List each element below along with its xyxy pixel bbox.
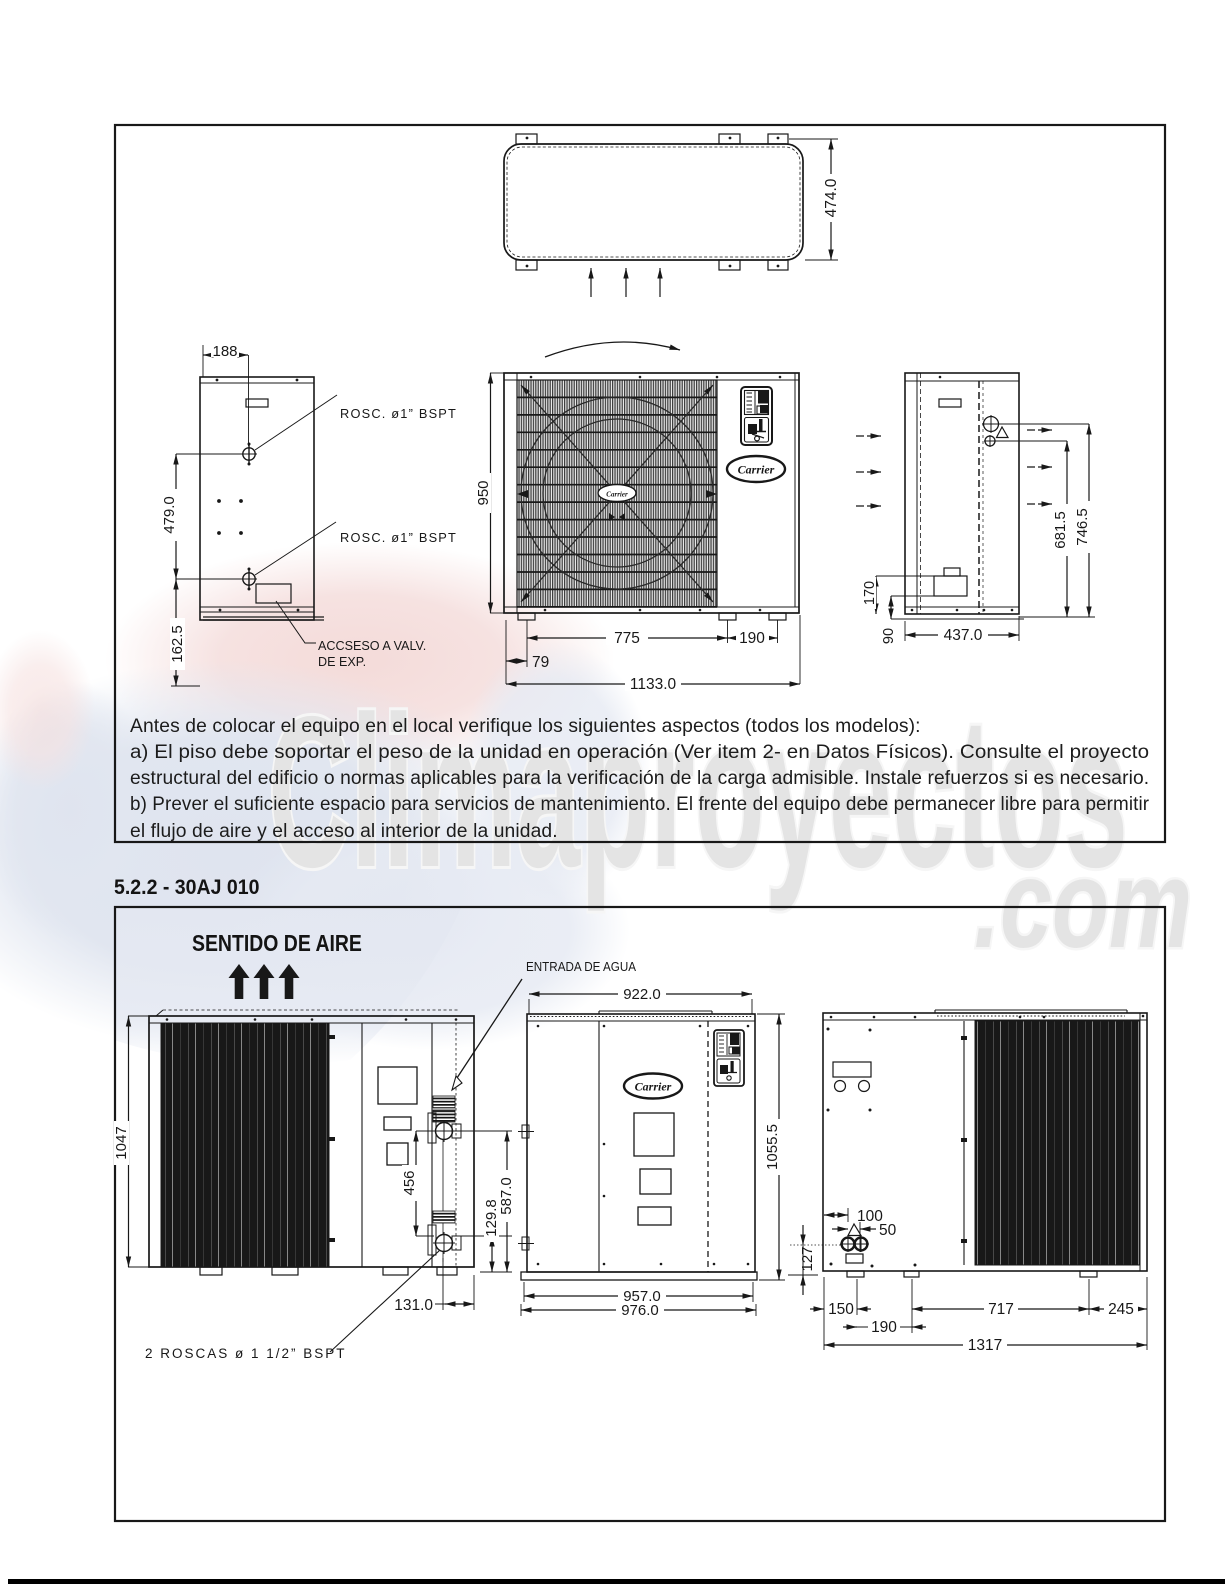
svg-text:1133.0: 1133.0 bbox=[630, 676, 677, 693]
svg-text:188: 188 bbox=[212, 343, 237, 360]
svg-text:79: 79 bbox=[532, 654, 549, 671]
svg-text:2 ROSCAS ø 1 1/2” BSPT: 2 ROSCAS ø 1 1/2” BSPT bbox=[145, 1346, 347, 1361]
svg-text:ENTRADA DE AGUA: ENTRADA DE AGUA bbox=[526, 959, 636, 974]
svg-text:1055.5: 1055.5 bbox=[764, 1124, 781, 1170]
svg-text:456: 456 bbox=[401, 1170, 418, 1195]
svg-text:1317: 1317 bbox=[968, 1337, 1002, 1354]
svg-text:587.0: 587.0 bbox=[498, 1177, 515, 1215]
svg-text:479.0: 479.0 bbox=[161, 496, 178, 534]
svg-text:ROSC. ø1” BSPT: ROSC. ø1” BSPT bbox=[340, 406, 457, 421]
svg-text:129.8: 129.8 bbox=[483, 1199, 500, 1237]
svg-text:245: 245 bbox=[1108, 1301, 1134, 1318]
svg-text:474.0: 474.0 bbox=[823, 178, 840, 217]
svg-text:131.0: 131.0 bbox=[394, 1297, 433, 1314]
svg-text:775: 775 bbox=[614, 630, 640, 647]
svg-text:950: 950 bbox=[475, 480, 492, 505]
svg-text:Carrier: Carrier bbox=[606, 491, 628, 499]
svg-text:ACCSESO A VALV.: ACCSESO A VALV. bbox=[318, 639, 426, 653]
svg-text:150: 150 bbox=[828, 1301, 854, 1318]
svg-text:190: 190 bbox=[739, 630, 765, 647]
svg-text:437.0: 437.0 bbox=[944, 627, 983, 644]
svg-text:717: 717 bbox=[988, 1301, 1014, 1318]
svg-text:1047: 1047 bbox=[113, 1126, 130, 1159]
svg-text:DE EXP.: DE EXP. bbox=[318, 655, 366, 669]
svg-text:50: 50 bbox=[879, 1222, 897, 1239]
svg-text:Carrier: Carrier bbox=[738, 463, 775, 477]
svg-text:Carrier: Carrier bbox=[635, 1080, 672, 1094]
svg-text:127: 127 bbox=[799, 1246, 816, 1271]
svg-text:922.0: 922.0 bbox=[623, 986, 661, 1003]
svg-text:190: 190 bbox=[871, 1319, 897, 1336]
svg-text:170: 170 bbox=[862, 581, 878, 605]
svg-text:681.5: 681.5 bbox=[1052, 511, 1069, 549]
svg-text:ROSC. ø1” BSPT: ROSC. ø1” BSPT bbox=[340, 530, 457, 545]
svg-text:976.0: 976.0 bbox=[621, 1302, 659, 1319]
svg-text:90: 90 bbox=[881, 628, 897, 644]
svg-text:746.5: 746.5 bbox=[1074, 508, 1091, 546]
svg-text:162.5: 162.5 bbox=[169, 625, 186, 663]
